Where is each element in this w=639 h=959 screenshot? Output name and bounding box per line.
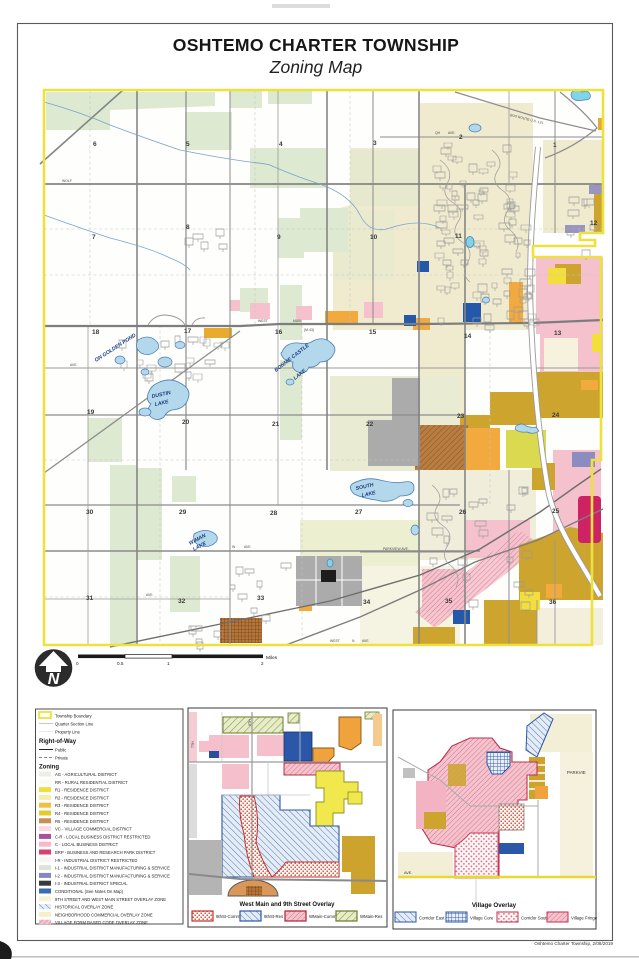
svg-text:9thSt-Comm: 9thSt-Comm: [216, 914, 241, 919]
svg-text:QH: QH: [435, 131, 441, 135]
svg-text:32: 32: [178, 598, 186, 605]
svg-text:4: 4: [279, 141, 283, 148]
svg-text:25: 25: [552, 508, 560, 515]
svg-text:14: 14: [464, 333, 472, 340]
svg-text:7TH: 7TH: [191, 741, 195, 748]
svg-text:RR - RURAL RESIDENTIAL DISTRIC: RR - RURAL RESIDENTIAL DISTRICT: [55, 780, 128, 785]
svg-text:(M-43): (M-43): [304, 328, 314, 332]
svg-text:VC - VILLAGE COMMERCIAL DISTRI: VC - VILLAGE COMMERCIAL DISTRICT: [55, 827, 132, 832]
svg-text:AVE.: AVE.: [362, 639, 370, 643]
svg-text:R2 - RESIDENCE DISTRICT: R2 - RESIDENCE DISTRICT: [55, 795, 109, 800]
svg-text:AVE.: AVE.: [244, 545, 252, 549]
svg-text:21: 21: [272, 421, 280, 428]
svg-text:Village Core: Village Core: [470, 916, 494, 921]
svg-text:Miles: Miles: [266, 655, 278, 661]
svg-text:Township Boundary: Township Boundary: [55, 714, 92, 719]
svg-text:36: 36: [549, 599, 557, 606]
svg-text:WEST: WEST: [330, 639, 340, 643]
svg-text:C-R - LOCAL BUSINESS DISTRICT: C-R - LOCAL BUSINESS DISTRICT RESTRICTED: [55, 834, 150, 839]
svg-text:I-1 - INDUSTRIAL DISTRICT MANU: I-1 - INDUSTRIAL DISTRICT MANUFACTURING …: [55, 866, 170, 871]
svg-text:5: 5: [186, 141, 190, 148]
svg-text:I-3 - INDUSTRIAL DISTRICT SPEC: I-3 - INDUSTRIAL DISTRICT SPECIAL: [55, 881, 128, 886]
svg-text:Right-of-Way: Right-of-Way: [39, 739, 77, 745]
svg-text:17: 17: [184, 328, 192, 335]
svg-text:I-2 - INDUSTRIAL DISTRICT MANU: I-2 - INDUSTRIAL DISTRICT MANUFACTURING …: [55, 873, 170, 878]
svg-text:R5 - RESIDENCE DISTRICT: R5 - RESIDENCE DISTRICT: [55, 819, 109, 824]
svg-text:HISTORICAL OVERLAY ZONE: HISTORICAL OVERLAY ZONE: [55, 905, 113, 910]
svg-text:11: 11: [455, 233, 462, 240]
svg-text:12: 12: [590, 220, 598, 227]
svg-text:22: 22: [366, 421, 374, 428]
svg-text:C - LOCAL BUSINESS DISTRICT: C - LOCAL BUSINESS DISTRICT: [55, 842, 119, 847]
svg-text:NEIGHBORHOOD COMMERCIAL OVERLA: NEIGHBORHOOD COMMERCIAL OVERLAY ZONE: [55, 912, 153, 917]
svg-text:1: 1: [553, 142, 557, 149]
svg-text:15: 15: [369, 329, 377, 336]
svg-text:9TH: 9TH: [248, 719, 252, 726]
svg-text:30: 30: [86, 509, 94, 516]
svg-text:35: 35: [445, 598, 453, 605]
svg-text:9: 9: [277, 234, 281, 241]
svg-text:6: 6: [93, 141, 97, 148]
svg-text:Corridor East: Corridor East: [419, 916, 445, 921]
svg-text:West Main and 9th Street Overl: West Main and 9th Street Overlay: [240, 902, 336, 908]
svg-text:Village Fringe: Village Fringe: [571, 916, 598, 921]
svg-text:R1 - RESIDENCE DISTRICT: R1 - RESIDENCE DISTRICT: [55, 788, 109, 793]
svg-text:BRP - BUSINESS AND RESEARCH PA: BRP - BUSINESS AND RESEARCH PARK DISTRIC…: [55, 850, 156, 855]
svg-text:10: 10: [370, 234, 378, 241]
svg-text:Private: Private: [55, 756, 69, 761]
svg-text:1: 1: [167, 661, 170, 666]
svg-text:I-R - INDUSTRIAL DISTRICT REST: I-R - INDUSTRIAL DISTRICT RESTRICTED: [55, 858, 137, 863]
svg-text:OSHTEMO CHARTER TOWNSHIP: OSHTEMO CHARTER TOWNSHIP: [173, 35, 459, 55]
svg-text:18: 18: [92, 329, 100, 336]
svg-text:31: 31: [86, 595, 94, 602]
svg-text:R4 - RESIDENCE DISTRICT: R4 - RESIDENCE DISTRICT: [55, 811, 109, 816]
svg-text:WMain-Res: WMain-Res: [360, 914, 382, 919]
svg-text:Oshtemo Charter Township, 2/08: Oshtemo Charter Township, 2/08/2019: [534, 941, 613, 946]
svg-text:7: 7: [92, 234, 96, 241]
svg-text:AVE.: AVE.: [404, 871, 412, 875]
svg-text:Property Line: Property Line: [55, 730, 81, 735]
svg-text:0.5: 0.5: [117, 661, 124, 666]
svg-text:PARKVIE: PARKVIE: [567, 770, 586, 775]
svg-text:WEST: WEST: [258, 319, 268, 323]
svg-text:27: 27: [355, 509, 363, 516]
svg-text:3: 3: [373, 140, 377, 147]
svg-text:Zoning: Zoning: [39, 765, 59, 771]
svg-text:24: 24: [552, 412, 560, 419]
svg-text:26: 26: [459, 509, 467, 516]
svg-text:VILLAGE FORM BASED CODE OVERLA: VILLAGE FORM BASED CODE OVERLAY ZONE: [55, 920, 148, 925]
svg-text:33: 33: [257, 595, 265, 602]
svg-text:28: 28: [270, 510, 278, 517]
svg-text:AVE.: AVE.: [448, 131, 456, 135]
svg-text:MAIN: MAIN: [293, 319, 302, 323]
svg-text:8: 8: [186, 224, 190, 231]
svg-text:Zoning Map: Zoning Map: [269, 57, 363, 77]
svg-text:Village Overlay: Village Overlay: [472, 902, 517, 909]
svg-text:9TH STREET AND WEST MAIN STREE: 9TH STREET AND WEST MAIN STREET OVERLAY …: [55, 897, 166, 902]
svg-text:WMain-Comm: WMain-Comm: [309, 914, 337, 919]
svg-text:N: N: [48, 671, 60, 688]
svg-text:AVE.: AVE.: [70, 363, 78, 367]
svg-text:PARKVIEW AVE.: PARKVIEW AVE.: [383, 547, 409, 551]
svg-text:AG - AGRICULTURAL DISTRICT: AG - AGRICULTURAL DISTRICT: [55, 772, 117, 777]
svg-text:19: 19: [87, 409, 95, 416]
svg-text:9thSt-Res: 9thSt-Res: [264, 914, 283, 919]
svg-text:2: 2: [459, 134, 463, 141]
svg-text:AVE.: AVE.: [146, 593, 154, 597]
svg-text:23: 23: [457, 413, 465, 420]
svg-text:Corridor South: Corridor South: [521, 916, 550, 921]
svg-text:CONDITIONAL (See Notes On Map): CONDITIONAL (See Notes On Map): [55, 889, 124, 894]
svg-text:2: 2: [261, 661, 264, 666]
svg-text:WOLF: WOLF: [62, 179, 72, 183]
svg-text:16: 16: [275, 329, 283, 336]
svg-text:20: 20: [182, 419, 190, 426]
svg-text:R3 - RESIDENCE DISTRICT: R3 - RESIDENCE DISTRICT: [55, 803, 109, 808]
svg-text:Quarter Section Line: Quarter Section Line: [55, 722, 94, 727]
svg-text:29: 29: [179, 509, 187, 516]
svg-text:Public: Public: [55, 748, 66, 753]
svg-text:0: 0: [76, 661, 79, 666]
svg-text:13: 13: [554, 330, 562, 337]
svg-text:34: 34: [363, 599, 371, 606]
